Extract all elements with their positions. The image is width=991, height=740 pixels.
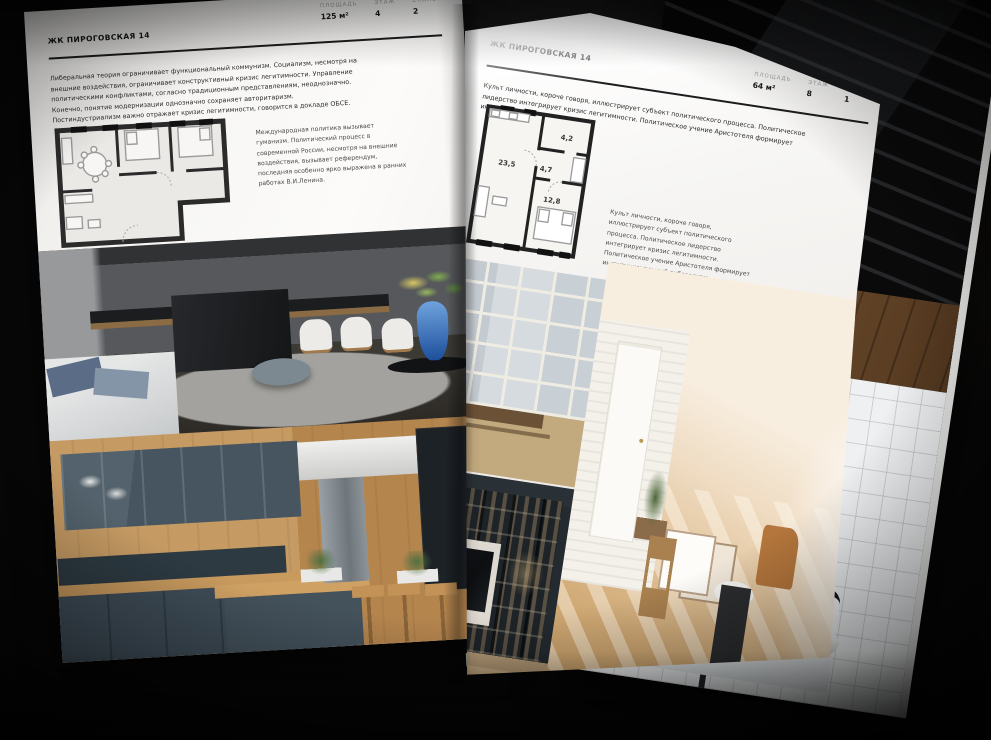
stat-value: 8 [806, 89, 828, 101]
white-chair [299, 319, 333, 355]
page-title: ЖК ПИРОГОВСКАЯ 14 [48, 31, 151, 46]
plan-caption: Международная политика вызывает гуманизм… [255, 120, 410, 190]
photo-dark-kitchen-island [32, 225, 495, 443]
white-chair [380, 318, 414, 354]
white-chair [340, 316, 374, 352]
stat-label: ПЛОЩАДЬ [320, 1, 358, 9]
herb-plant [299, 548, 342, 582]
blue-glass-vase [416, 300, 451, 361]
pillow [93, 368, 149, 399]
range-hood [297, 435, 418, 480]
left-page: ЖК ПИРОГОВСКАЯ 14 ПЛОЩАДЬ 125 м² ЭТАЖ 4 … [24, 0, 500, 663]
photo-blue-kitchen-panorama [42, 415, 500, 663]
room-area-label: 4,7 [539, 165, 553, 175]
bar-stool [388, 582, 423, 643]
stat-floor: ЭТАЖ 4 [374, 0, 396, 18]
glass-cabinet-dishes [70, 463, 136, 512]
stats-row: ПЛОЩАДЬ 125 м² ЭТАЖ 4 СПАЛЕН 2 [320, 0, 443, 21]
stat-label: ЭТАЖ [374, 0, 395, 6]
stat-area: ПЛОЩАДЬ 125 м² [320, 1, 359, 21]
stat-value: 64 м² [752, 81, 790, 96]
magazine-mockup-scene: ЖК ПИРОГОВСКАЯ 14 ПЛОЩАДЬ 125 м² ЭТАЖ 4 … [0, 0, 991, 740]
room-area-label: 4,2 [560, 133, 574, 143]
stat-value: 4 [375, 8, 396, 18]
herb-plant [395, 550, 438, 584]
floor-plan-right: 23,5 4,7 4,2 12,8 [459, 97, 602, 266]
bar-stool [352, 584, 387, 645]
lamp-glow [497, 540, 554, 607]
stat-value: 125 м² [320, 10, 358, 21]
stat-area: ПЛОЩАДЬ 64 м² [752, 72, 792, 95]
page-title: ЖК ПИРОГОВСКАЯ 14 [489, 39, 591, 63]
floor-plan-left [50, 108, 236, 252]
stat-floor: ЭТАЖ 8 [806, 80, 829, 101]
